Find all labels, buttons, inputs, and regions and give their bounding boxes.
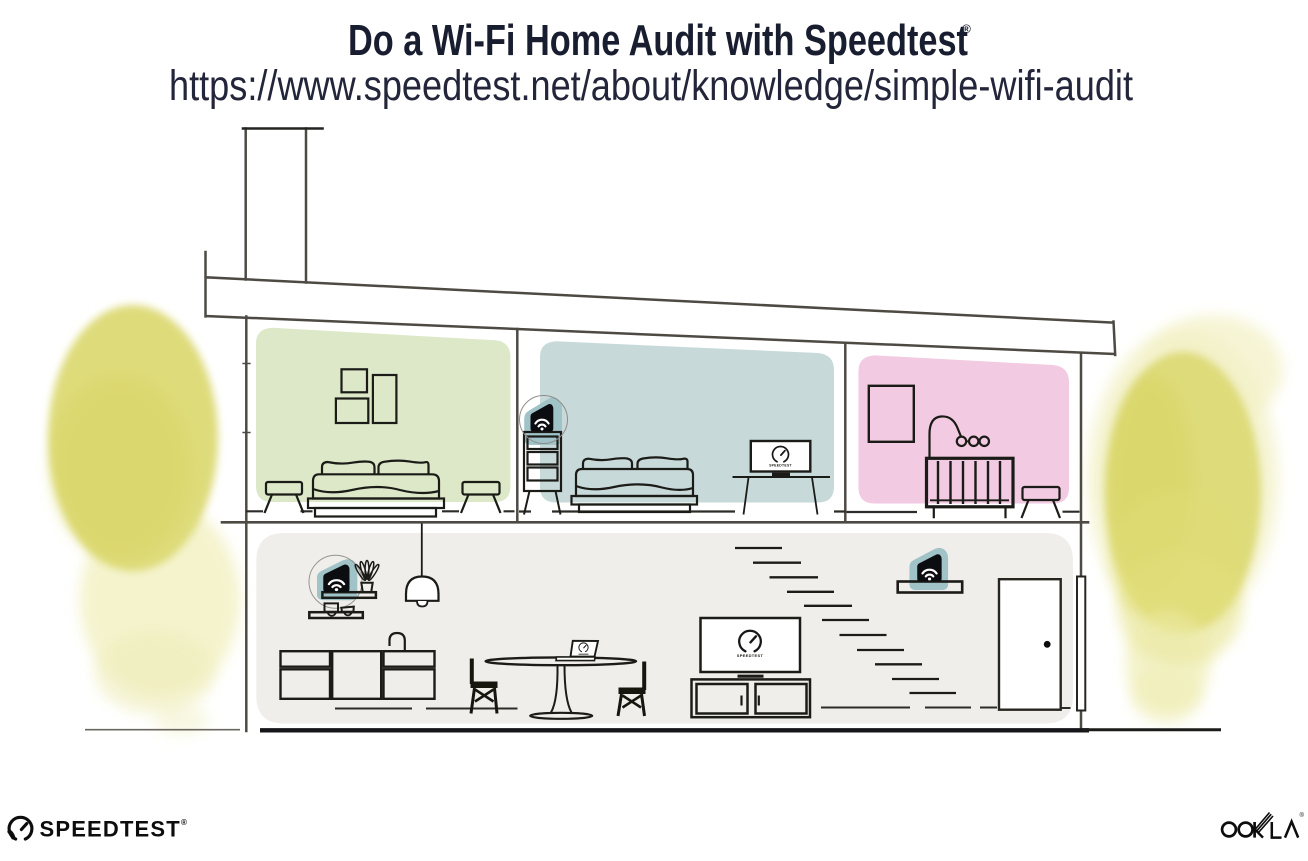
svg-text:SPEEDTEST: SPEEDTEST xyxy=(40,817,181,842)
svg-text:®: ® xyxy=(962,22,971,36)
svg-text:®: ® xyxy=(1300,812,1305,819)
svg-text:Do a Wi-Fi Home Audit with Spe: Do a Wi-Fi Home Audit with Speedtest xyxy=(348,16,968,65)
svg-text:SPEEDTEST: SPEEDTEST xyxy=(769,464,792,468)
svg-text:SPEEDTEST: SPEEDTEST xyxy=(737,653,764,658)
svg-text:https://www.speedtest.net/abou: https://www.speedtest.net/about/knowledg… xyxy=(169,62,1133,110)
svg-text:®: ® xyxy=(181,818,187,827)
